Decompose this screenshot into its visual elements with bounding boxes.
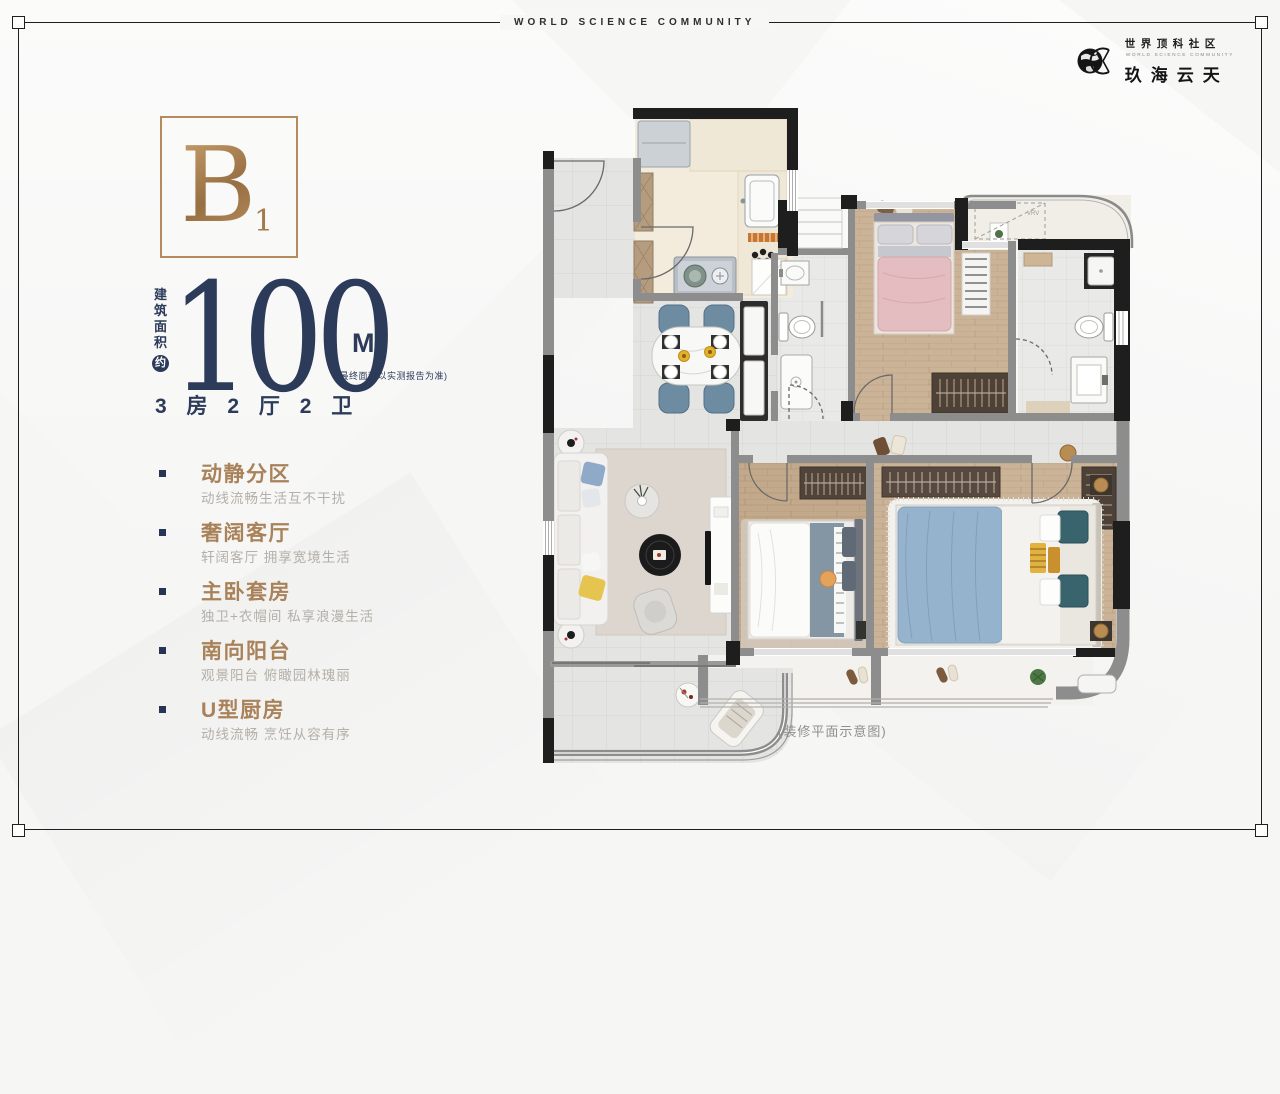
feature-desc: 动线流畅 烹饪从容有序	[201, 726, 374, 744]
globe-icon	[1073, 38, 1119, 84]
feature-item: 奢阔客厅 轩阔客厅 拥享宽境生活	[157, 521, 374, 567]
unit-type-letter: B	[180, 114, 256, 256]
bullet-square-icon	[159, 647, 166, 654]
room-count-line: 3 房 2 厅 2 卫	[155, 390, 359, 420]
feature-title: 奢阔客厅	[201, 521, 374, 547]
logo-community-cn: 世界顶科社区	[1125, 36, 1234, 51]
area-unit: M2	[352, 328, 383, 359]
feature-title: 南向阳台	[201, 639, 374, 665]
bullet-square-icon	[159, 706, 166, 713]
floorplan: VRV	[538, 103, 1138, 775]
feature-list: 动静分区 动线流畅生活互不干扰 奢阔客厅 轩阔客厅 拥享宽境生活 主卧套房 独卫…	[157, 462, 374, 757]
frame-corner-square	[1255, 16, 1268, 29]
feature-item: 动静分区 动线流畅生活互不干扰	[157, 462, 374, 508]
logo-community-en: WORLD SCIENCE COMMUNITY	[1126, 53, 1234, 58]
feature-desc: 轩阔客厅 拥享宽境生活	[201, 549, 374, 567]
area-unit-letter: M	[352, 328, 375, 358]
logo-brand-name: 玖海云天	[1125, 61, 1234, 86]
vrv-label: VRV	[1027, 211, 1039, 217]
frame-corner-square	[12, 824, 25, 837]
header-tagline: WORLD SCIENCE COMMUNITY	[500, 15, 769, 30]
area-label-vertical: 建筑面积	[153, 287, 168, 351]
plan-caption: (装修平面示意图)	[778, 721, 887, 740]
living-furniture	[554, 430, 733, 648]
feature-title: 主卧套房	[201, 580, 374, 606]
area-note: (最终面积以实测报告为准)	[336, 369, 448, 382]
bullet-square-icon	[159, 588, 166, 595]
area-unit-sup: 2	[375, 330, 383, 347]
bullet-square-icon	[159, 529, 166, 536]
feature-desc: 动线流畅生活互不干扰	[201, 490, 374, 508]
feature-desc: 独卫+衣帽间 私享浪漫生活	[201, 608, 374, 626]
feature-title: U型厨房	[201, 698, 374, 724]
area-approx-circle: 约	[152, 355, 169, 372]
bullet-square-icon	[159, 470, 166, 477]
feature-title: 动静分区	[201, 462, 374, 488]
feature-item: 南向阳台 观景阳台 俯瞰园林瑰丽	[157, 639, 374, 685]
frame-corner-square	[1255, 824, 1268, 837]
feature-item: 主卧套房 独卫+衣帽间 私享浪漫生活	[157, 580, 374, 626]
brand-logo: 世界顶科社区 WORLD SCIENCE COMMUNITY 玖海云天	[1073, 36, 1234, 86]
unit-type-number: 1	[254, 204, 273, 239]
floorplan-svg: VRV	[538, 103, 1138, 775]
feature-desc: 观景阳台 俯瞰园林瑰丽	[201, 667, 374, 685]
frame-corner-square	[12, 16, 25, 29]
unit-type-badge: B 1	[160, 116, 298, 258]
feature-item: U型厨房 动线流畅 烹饪从容有序	[157, 698, 374, 744]
